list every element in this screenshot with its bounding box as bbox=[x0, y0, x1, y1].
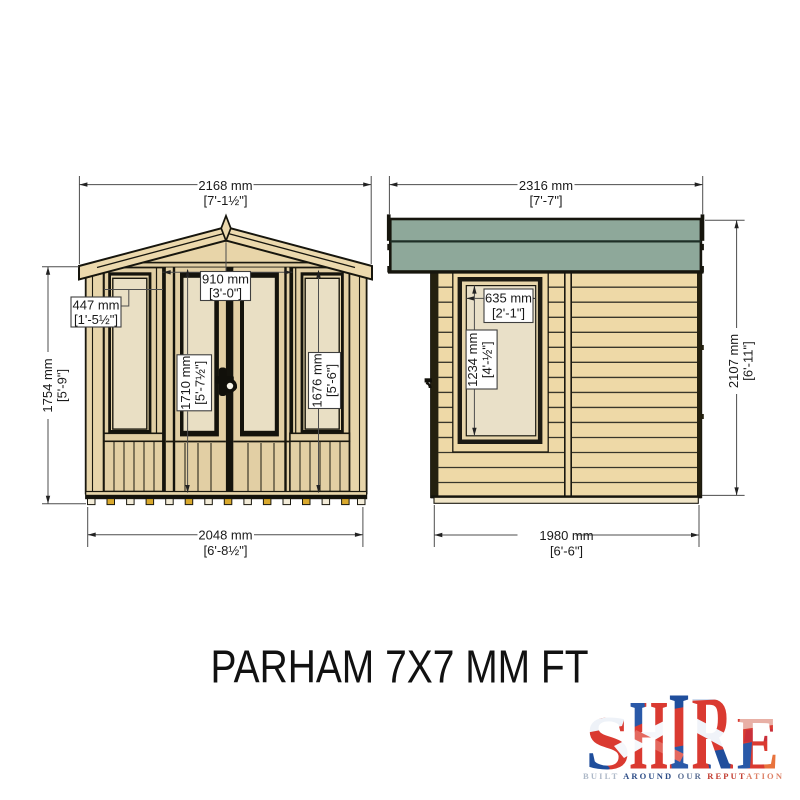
svg-text:2107 mm: 2107 mm bbox=[726, 334, 741, 388]
svg-text:[1'-5½"]: [1'-5½"] bbox=[74, 312, 118, 327]
svg-text:PARHAM 7X7 MM FT: PARHAM 7X7 MM FT bbox=[211, 641, 589, 693]
svg-text:[3'-0"]: [3'-0"] bbox=[209, 286, 242, 301]
svg-text:[5'-7½"]: [5'-7½"] bbox=[193, 361, 208, 405]
svg-text:[6'-8½"]: [6'-8½"] bbox=[204, 543, 248, 558]
svg-text:[2'-1"]: [2'-1"] bbox=[492, 306, 525, 321]
svg-text:2168 mm: 2168 mm bbox=[198, 178, 252, 193]
svg-text:[7'-7"]: [7'-7"] bbox=[529, 193, 562, 208]
svg-text:1710 mm: 1710 mm bbox=[178, 356, 193, 410]
svg-text:447 mm: 447 mm bbox=[73, 298, 120, 313]
svg-text:[6'-11"]: [6'-11"] bbox=[741, 341, 756, 380]
svg-text:1234 mm: 1234 mm bbox=[465, 333, 480, 387]
svg-text:[5'-6"]: [5'-6"] bbox=[324, 364, 339, 397]
svg-text:2048 mm: 2048 mm bbox=[198, 528, 252, 543]
svg-text:1980 mm: 1980 mm bbox=[539, 528, 593, 543]
svg-text:[4'-½"]: [4'-½"] bbox=[480, 341, 495, 378]
svg-text:635 mm: 635 mm bbox=[485, 291, 532, 306]
svg-text:1676 mm: 1676 mm bbox=[310, 353, 325, 407]
svg-text:2316 mm: 2316 mm bbox=[519, 178, 573, 193]
svg-text:[7'-1½"]: [7'-1½"] bbox=[204, 193, 248, 208]
svg-text:[5'-9"]: [5'-9"] bbox=[55, 369, 70, 402]
svg-text:[6'-6"]: [6'-6"] bbox=[550, 544, 583, 559]
svg-text:BUILT AROUND OUR REPUTATION: BUILT AROUND OUR REPUTATION bbox=[583, 771, 784, 781]
svg-text:910 mm: 910 mm bbox=[202, 272, 249, 287]
svg-text:1754 mm: 1754 mm bbox=[40, 358, 55, 412]
